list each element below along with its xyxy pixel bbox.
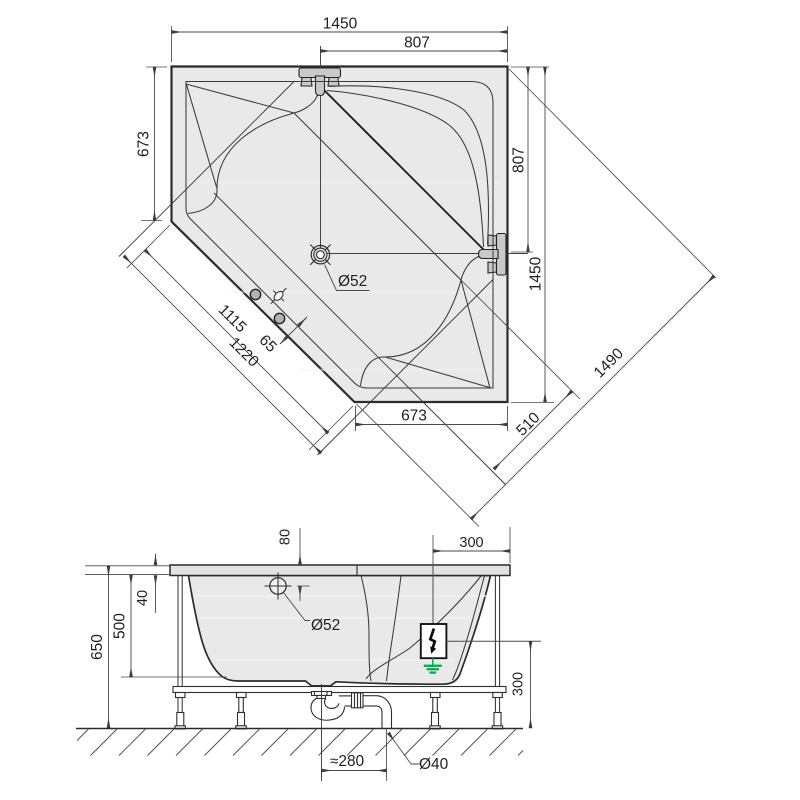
svg-text:40: 40 bbox=[135, 590, 151, 606]
svg-text:Ø52: Ø52 bbox=[311, 617, 340, 634]
svg-text:807: 807 bbox=[511, 147, 528, 173]
svg-text:80: 80 bbox=[278, 529, 294, 545]
svg-text:1220: 1220 bbox=[225, 334, 262, 371]
svg-text:300: 300 bbox=[511, 672, 527, 696]
svg-text:65: 65 bbox=[256, 332, 280, 356]
svg-text:1450: 1450 bbox=[323, 16, 358, 33]
svg-text:673: 673 bbox=[136, 131, 153, 157]
svg-text:1490: 1490 bbox=[591, 345, 628, 382]
svg-text:650: 650 bbox=[89, 634, 106, 660]
svg-text:300: 300 bbox=[459, 535, 483, 551]
svg-text:1115: 1115 bbox=[215, 301, 250, 336]
svg-text:≈280: ≈280 bbox=[330, 753, 365, 770]
svg-text:1450: 1450 bbox=[528, 256, 545, 291]
svg-text:510: 510 bbox=[513, 409, 544, 440]
svg-text:500: 500 bbox=[112, 613, 129, 639]
svg-text:Ø52: Ø52 bbox=[338, 273, 367, 290]
svg-text:Ø40: Ø40 bbox=[419, 756, 449, 773]
svg-text:807: 807 bbox=[404, 35, 430, 52]
svg-text:673: 673 bbox=[401, 408, 427, 425]
